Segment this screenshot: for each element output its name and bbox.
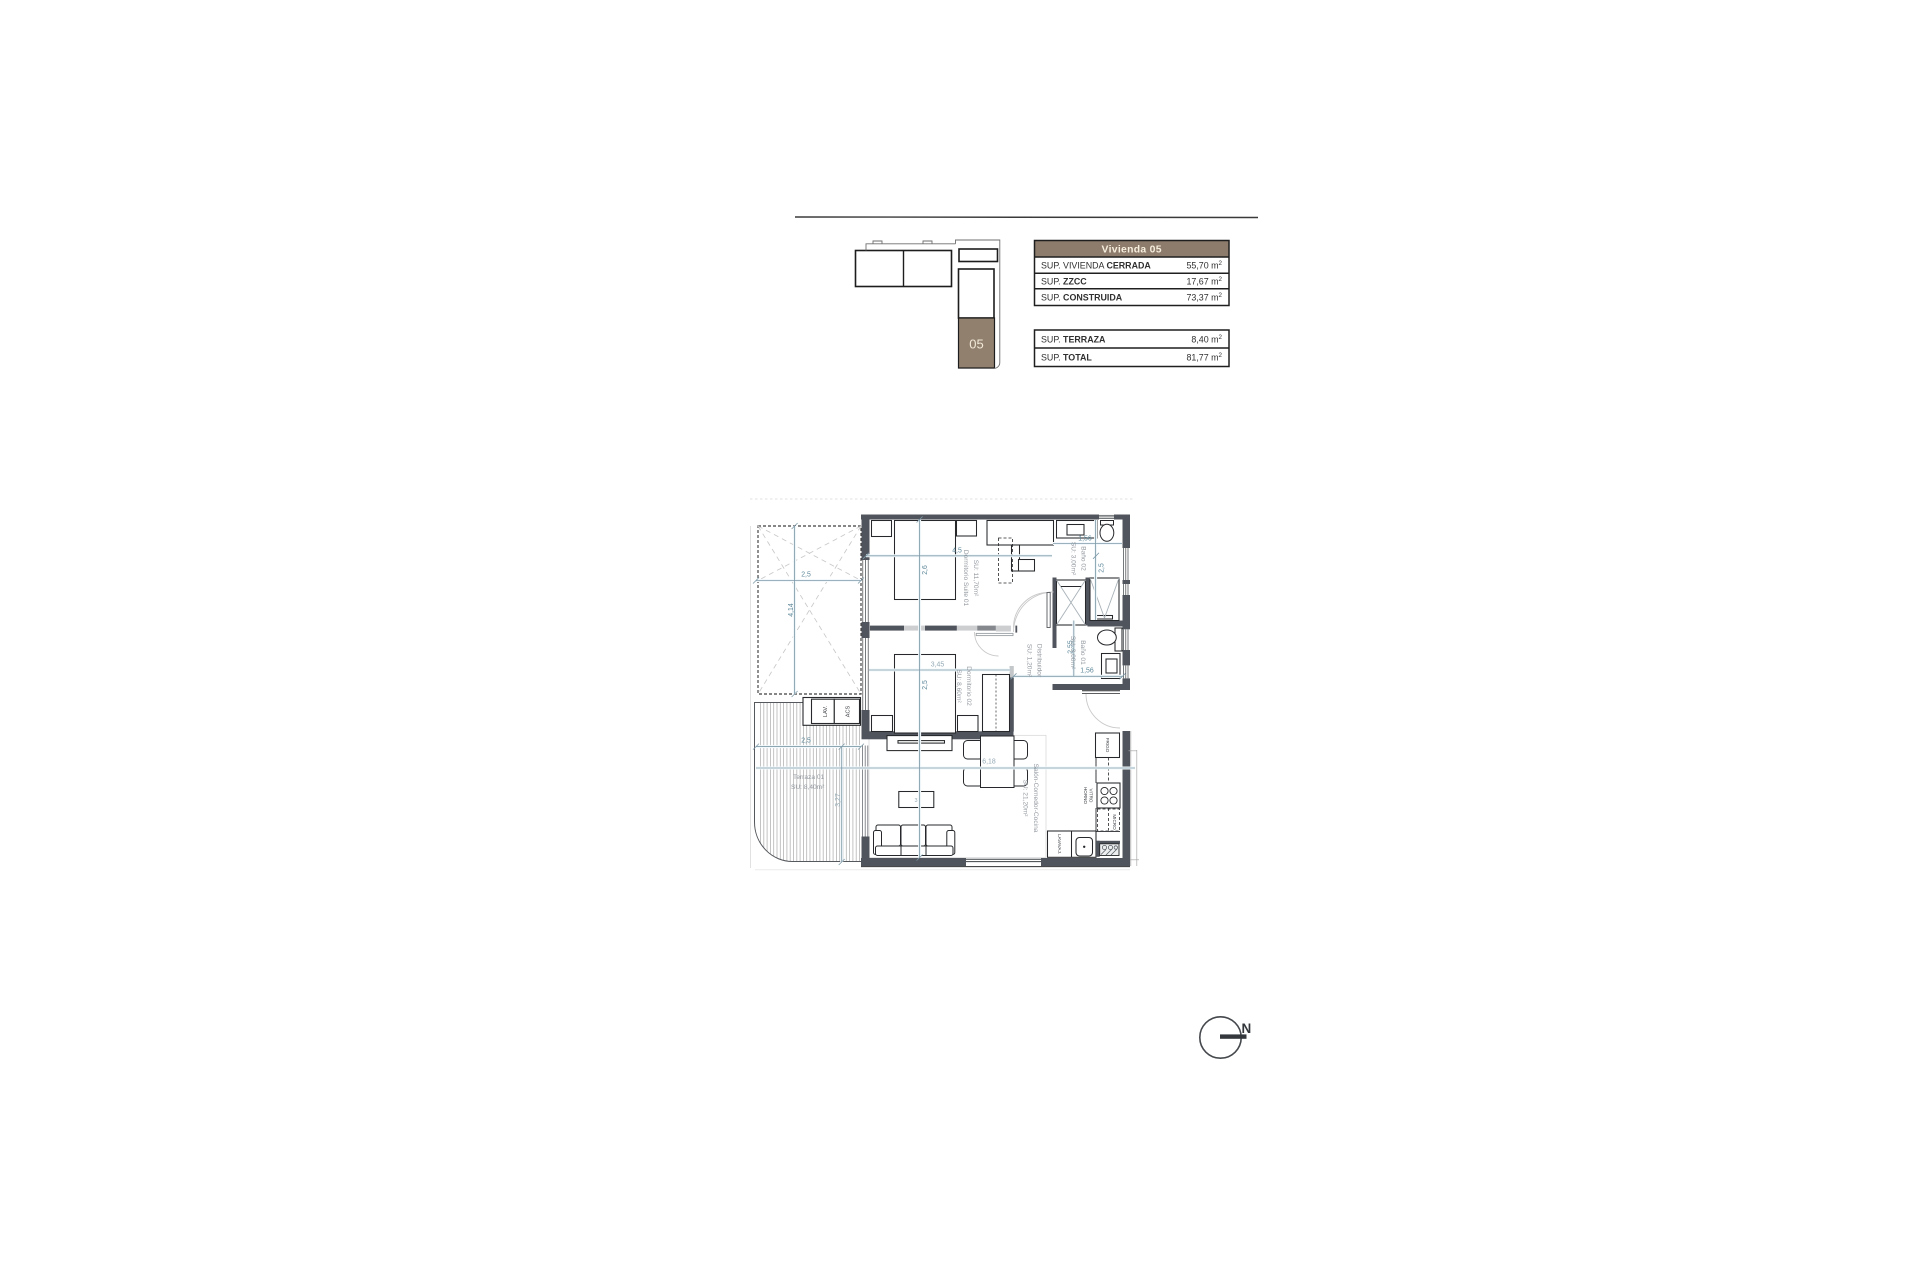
svg-text:4,5: 4,5 (952, 548, 962, 555)
svg-text:2,5: 2,5 (801, 572, 811, 579)
svg-text:SU: 11,70m²: SU: 11,70m² (972, 560, 979, 597)
svg-text:MICRO: MICRO (1112, 814, 1117, 830)
svg-text:N: N (1242, 1021, 1252, 1036)
svg-text:FRIGO: FRIGO (1105, 738, 1110, 753)
svg-text:VITRO: VITRO (1088, 788, 1093, 802)
svg-text:SU: 1,20m²: SU: 1,20m² (1026, 644, 1033, 678)
svg-text:55,70 m2: 55,70 m2 (1186, 260, 1222, 270)
svg-text:2,5: 2,5 (1098, 563, 1105, 573)
svg-text:SU: 8,60m²: SU: 8,60m² (955, 669, 962, 703)
svg-text:6,18: 6,18 (982, 759, 996, 766)
svg-text:17,67 m2: 17,67 m2 (1186, 276, 1222, 286)
svg-text:3,45: 3,45 (931, 662, 945, 669)
svg-text:LAVAVAJ.: LAVAVAJ. (1057, 834, 1062, 854)
svg-text:SU: 3,00m²: SU: 3,00m² (1069, 636, 1076, 670)
svg-text:05: 05 (969, 337, 983, 352)
svg-text:HORNO: HORNO (1083, 787, 1088, 805)
svg-text:Baño 02: Baño 02 (1080, 546, 1087, 571)
svg-text:SUP. TOTAL: SUP. TOTAL (1041, 353, 1092, 363)
svg-text:Dormitorio 02: Dormitorio 02 (965, 666, 972, 706)
svg-text:1,56: 1,56 (1078, 536, 1092, 543)
svg-text:4,14: 4,14 (788, 603, 795, 617)
svg-text:2,5: 2,5 (801, 738, 811, 745)
svg-text:8,40 m2: 8,40 m2 (1191, 334, 1222, 344)
svg-text:SUP. CONSTRUIDA: SUP. CONSTRUIDA (1041, 292, 1123, 302)
svg-text:SU: 3,00m²: SU: 3,00m² (1070, 542, 1077, 576)
svg-text:Terraza 01: Terraza 01 (793, 774, 824, 781)
svg-text:Distribuidor: Distribuidor (1036, 644, 1043, 678)
svg-text:3,27: 3,27 (835, 793, 842, 807)
svg-text:SU: 21,20m²: SU: 21,20m² (1022, 779, 1029, 817)
svg-text:2,6: 2,6 (922, 565, 929, 575)
svg-text:73,37 m2: 73,37 m2 (1186, 292, 1222, 302)
svg-text:SUP. ZZCC: SUP. ZZCC (1041, 276, 1087, 286)
svg-text:81,77 m2: 81,77 m2 (1186, 352, 1222, 362)
svg-text:Dormitorio Suite 01: Dormitorio Suite 01 (962, 550, 969, 607)
svg-text:Vivienda 05: Vivienda 05 (1102, 245, 1162, 256)
svg-text:SUP. TERRAZA: SUP. TERRAZA (1041, 335, 1106, 345)
svg-text:ACS: ACS (845, 705, 851, 717)
svg-text:LAV.: LAV. (823, 705, 829, 717)
svg-text:2,5: 2,5 (922, 680, 929, 690)
svg-text:SUP. VIVIENDA CERRADA: SUP. VIVIENDA CERRADA (1041, 260, 1151, 270)
svg-text:1,56: 1,56 (1080, 668, 1094, 675)
svg-text:3: 3 (914, 798, 917, 804)
svg-text:Baño 01: Baño 01 (1079, 640, 1086, 665)
svg-text:SU: 8,40m²: SU: 8,40m² (791, 784, 825, 791)
svg-text:Salón-Comedor-Cocina: Salón-Comedor-Cocina (1032, 764, 1039, 833)
